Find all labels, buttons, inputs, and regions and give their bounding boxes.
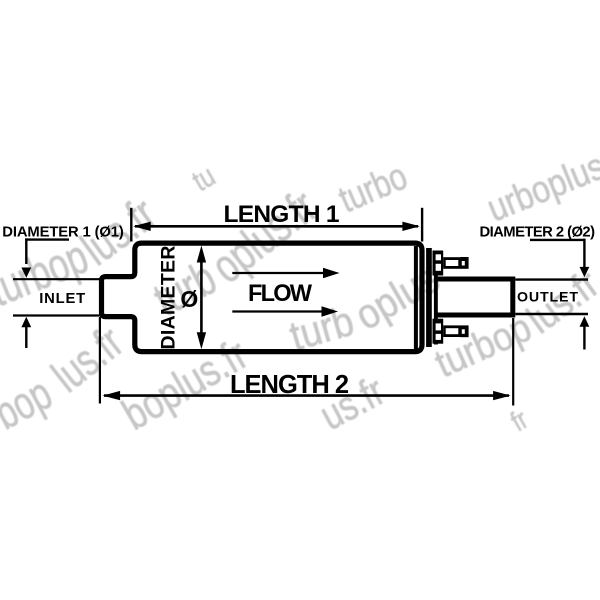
svg-text:DIAMETER: DIAMETER: [158, 246, 180, 350]
svg-text:INLET: INLET: [39, 291, 85, 307]
svg-text:Ø: Ø: [180, 286, 198, 312]
svg-text:LENGTH 1: LENGTH 1: [224, 201, 340, 228]
svg-text:LENGTH 2: LENGTH 2: [230, 371, 349, 399]
svg-text:DIAMETER 1 (Ø1): DIAMETER 1 (Ø1): [2, 225, 124, 241]
svg-text:OUTLET: OUTLET: [517, 289, 578, 305]
svg-text:DIAMETER 2 (Ø2): DIAMETER 2 (Ø2): [480, 225, 596, 241]
svg-text:FLOW: FLOW: [248, 281, 313, 307]
